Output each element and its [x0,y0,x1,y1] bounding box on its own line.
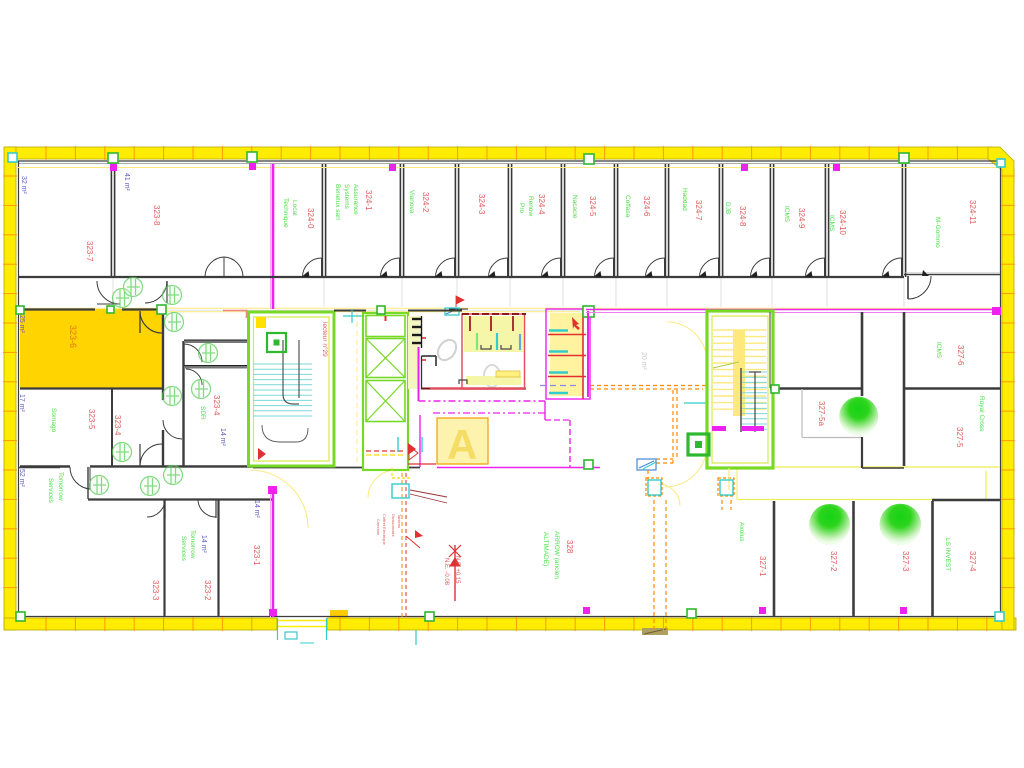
svg-text:324-0: 324-0 [306,208,315,229]
svg-text:14 m²: 14 m² [253,500,260,519]
svg-text:52 m²: 52 m² [18,469,25,488]
svg-text:327-5a: 327-5a [817,401,826,426]
svg-text:Technique: Technique [282,198,289,228]
svg-text:DJB: DJB [724,202,731,214]
svg-text:323-4: 323-4 [113,415,122,436]
svg-text:N.E. -0.08: N.E. -0.08 [443,558,449,586]
svg-text:Pro: Pro [518,203,525,214]
svg-text:323-8: 323-8 [152,205,161,226]
svg-text:N.F. +0.15: N.F. +0.15 [454,556,460,584]
svg-text:324-3: 324-3 [477,194,486,215]
svg-text:lecteur n°29: lecteur n°29 [321,322,329,357]
svg-text:323-6: 323-6 [68,325,78,348]
svg-text:324-9: 324-9 [797,208,806,229]
svg-text:327-6: 327-6 [956,345,965,366]
svg-text:324-7: 324-7 [694,200,703,221]
svg-text:ARROW (ancien: ARROW (ancien [553,531,560,579]
svg-text:324-10: 324-10 [838,210,847,235]
svg-text:Somago: Somago [50,408,57,433]
svg-text:Coffasa: Coffasa [624,195,631,218]
svg-text:32 m²: 32 m² [20,176,27,195]
svg-text:Vianova: Vianova [408,190,415,214]
svg-text:20 m²: 20 m² [640,352,647,371]
svg-text:323-5: 323-5 [87,409,96,430]
svg-text:ICMS: ICMS [783,206,790,223]
svg-text:Tomorrow: Tomorrow [57,472,64,501]
svg-text:Coffret Electrique: Coffret Electrique [382,514,387,546]
svg-text:328: 328 [565,540,574,554]
svg-text:ICMS: ICMS [935,342,942,359]
svg-text:327-5: 327-5 [955,427,964,448]
svg-text:323-1: 323-1 [252,545,261,566]
svg-text:Tableau: Tableau [397,514,402,528]
svg-text:323-2: 323-2 [203,580,212,601]
svg-text:323-3: 323-3 [151,580,160,601]
svg-text:ALTIMADE): ALTIMADE) [542,532,549,566]
svg-text:17 m²: 17 m² [18,394,25,413]
svg-text:M-Gommo: M-Gommo [934,217,941,248]
svg-text:LS INVEST: LS INVEST [944,538,951,571]
svg-text:324-6: 324-6 [642,196,651,217]
svg-text:Royal Cross: Royal Cross [978,396,985,432]
svg-text:327-1: 327-1 [758,556,767,577]
svg-text:324-2: 324-2 [421,192,430,213]
svg-text:Assurance: Assurance [352,184,359,215]
svg-text:14 m²: 14 m² [200,535,207,554]
svg-text:Haddad: Haddad [681,188,688,211]
svg-text:Tomorrow: Tomorrow [189,530,196,559]
svg-text:Benelux sarl: Benelux sarl [334,184,341,220]
svg-text:Commun: Commun [376,519,381,535]
svg-text:Nacacle: Nacacle [571,195,578,219]
svg-text:324-5: 324-5 [588,196,597,217]
svg-text:327-3: 327-3 [901,551,910,572]
svg-text:327-2: 327-2 [829,551,838,572]
svg-text:SDR: SDR [199,406,206,420]
svg-text:327-4: 327-4 [968,551,977,572]
svg-text:Local: Local [291,200,298,216]
svg-text:Renow: Renow [527,196,534,217]
svg-text:323-4: 323-4 [212,395,221,416]
svg-text:324-1: 324-1 [364,190,373,211]
svg-text:Services: Services [180,536,187,562]
svg-text:323-7: 323-7 [85,241,94,262]
svg-text:324-8: 324-8 [738,206,747,227]
svg-text:Systems: Systems [343,184,350,210]
svg-text:324-4: 324-4 [537,194,546,215]
svg-text:324-11: 324-11 [968,200,977,225]
svg-text:Axolus: Axolus [738,522,745,542]
svg-text:A: A [447,421,477,468]
svg-text:ICMS: ICMS [828,215,835,232]
svg-text:25 m²: 25 m² [18,315,25,334]
svg-text:41 m²: 41 m² [123,173,130,192]
svg-text:Divisionnaire: Divisionnaire [391,514,396,538]
svg-text:14 m²: 14 m² [219,428,226,447]
svg-text:Services: Services [47,478,54,504]
